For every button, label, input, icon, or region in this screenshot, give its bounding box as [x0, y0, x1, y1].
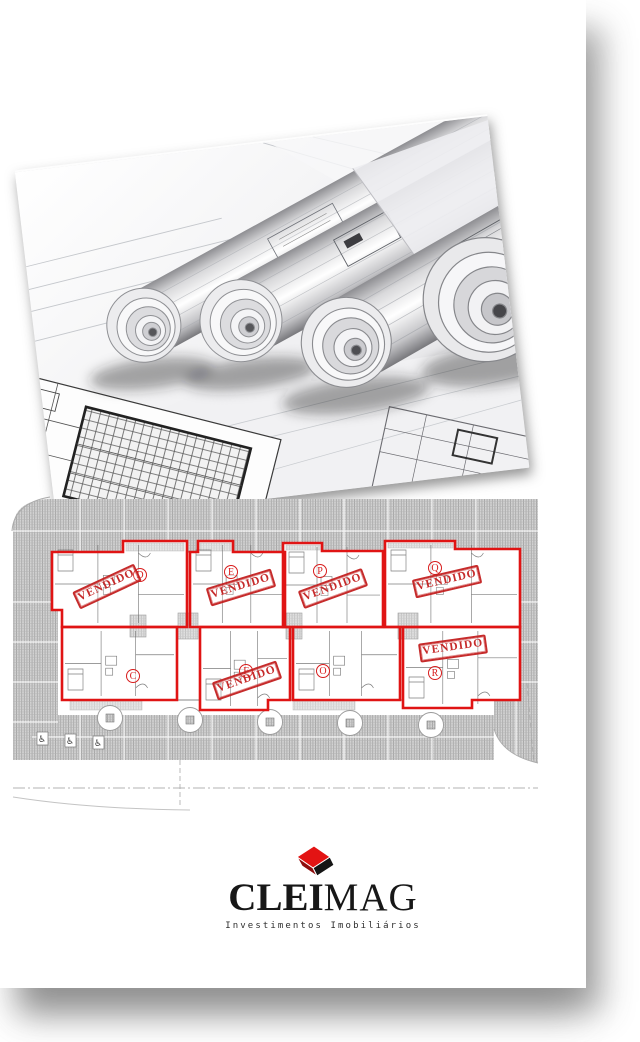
brand-name-bold: CLEI: [228, 876, 323, 919]
vendido-stamp-E: VENDIDO: [206, 568, 277, 606]
unit-letter-P: P: [313, 564, 327, 578]
cleimag-logo: CLEIMAG Investimentos Imobiliários: [203, 844, 443, 931]
unit-letter-O: O: [316, 664, 330, 678]
flyer-card: ♿♿♿ DVENDIDOEVENDIDOPVENDIDOQVENDIDOCFVE…: [0, 0, 586, 988]
unit-letter-R: R: [428, 666, 442, 680]
vendido-stamp-Q: VENDIDO: [412, 565, 483, 599]
blueprint-rolls-photo: [15, 114, 530, 524]
blueprint-photo-art: [15, 116, 530, 524]
unit-letter-E: E: [224, 565, 238, 579]
unit-letter-C: C: [126, 669, 140, 683]
vendido-stamp-D: VENDIDO: [72, 564, 142, 610]
logo-cube-icon: [293, 844, 335, 877]
brand-name-light: MAG: [324, 876, 418, 919]
site-plan: ♿♿♿ DVENDIDOEVENDIDOPVENDIDOQVENDIDOCFVE…: [10, 487, 540, 837]
vendido-stamp-R: VENDIDO: [418, 634, 488, 662]
brand-tagline: Investimentos Imobiliários: [203, 921, 443, 931]
unit-overlays: DVENDIDOEVENDIDOPVENDIDOQVENDIDOCFVENDID…: [10, 487, 540, 837]
vendido-stamp-P: VENDIDO: [298, 568, 368, 609]
brand-name: CLEIMAG: [203, 878, 443, 917]
